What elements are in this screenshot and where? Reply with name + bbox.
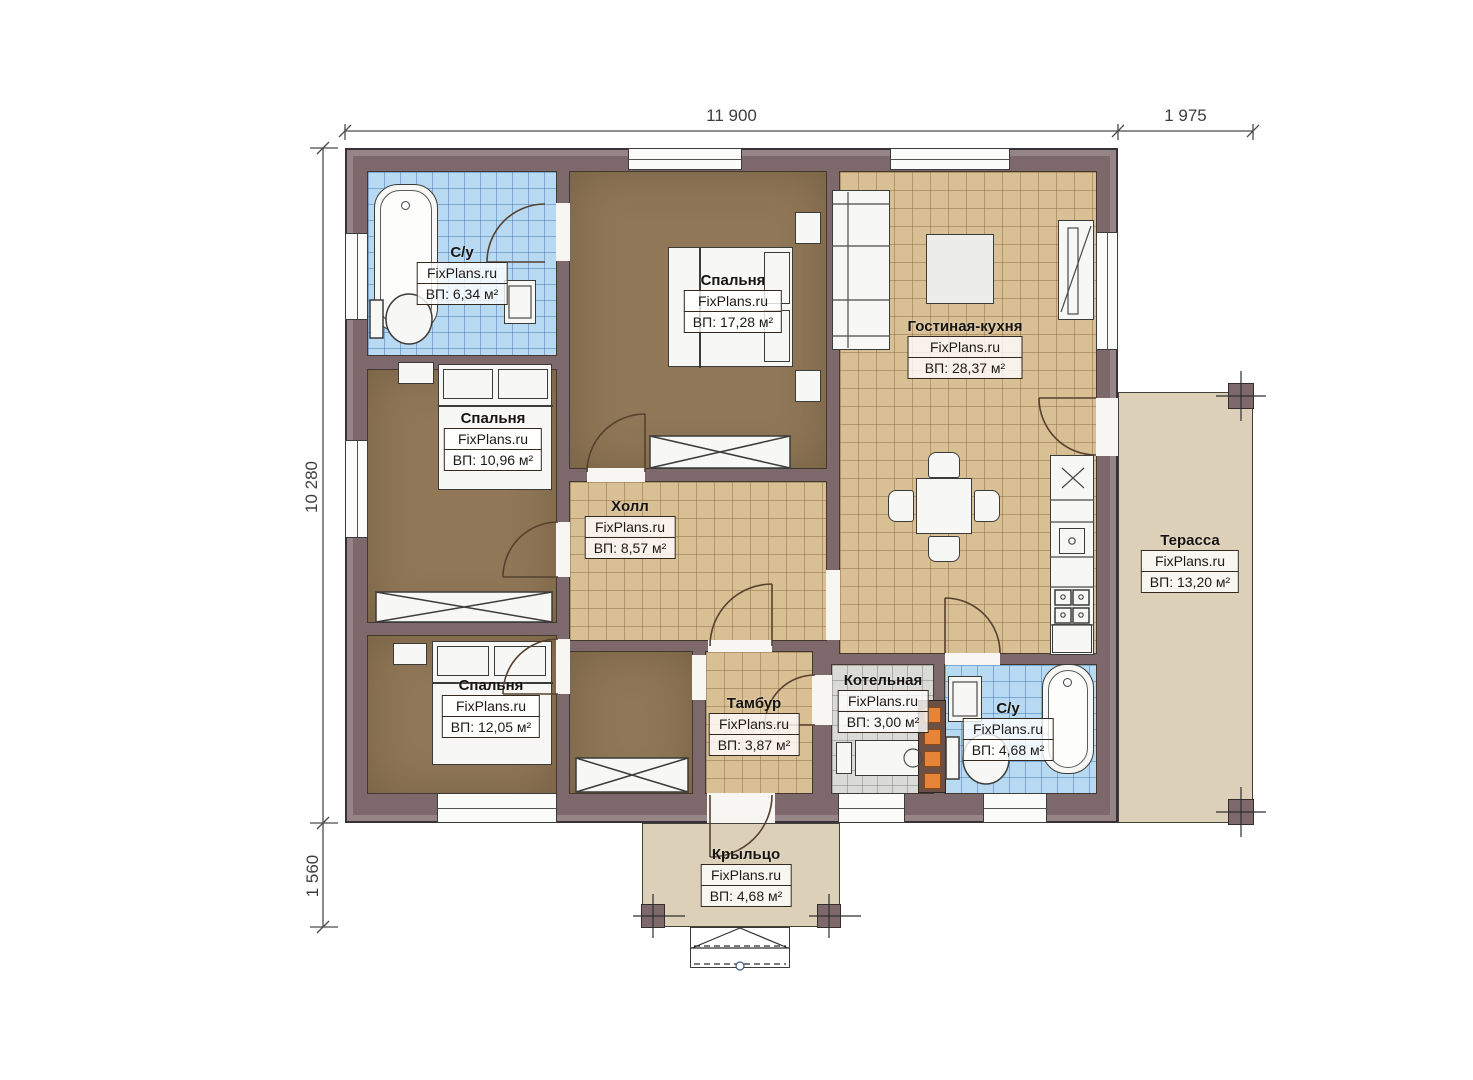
watermark: FixPlans.ru <box>838 690 929 712</box>
room-label-bedroom-2: Спальня FixPlans.ru ВП: 10,96 м² <box>444 410 542 471</box>
door-opening-terrace <box>1096 398 1118 456</box>
room-area: ВП: 12,05 м² <box>442 716 540 738</box>
window-boiler-bottom <box>838 793 905 823</box>
window-bedroom-1-top <box>628 148 742 170</box>
porch-post <box>817 904 841 928</box>
door-opening-entrance <box>707 793 775 823</box>
dimension-height-main: 10 280 <box>302 427 322 547</box>
window-living-right <box>1096 232 1118 350</box>
nightstand <box>398 362 434 384</box>
door-opening-boiler <box>812 675 832 725</box>
watermark: FixPlans.ru <box>963 718 1054 740</box>
chair <box>928 452 960 478</box>
dining-table <box>916 478 972 534</box>
room-name: Гостиная-кухня <box>908 318 1023 335</box>
coffee-table <box>926 234 994 304</box>
door-opening-bedroom-1 <box>587 468 645 482</box>
dimension-width-main: 11 900 <box>345 106 1118 126</box>
fridge <box>1052 624 1092 653</box>
terrace-post <box>1228 799 1254 825</box>
window-bathroom-1-left <box>345 233 368 320</box>
room-label-living-kitchen: Гостиная-кухня FixPlans.ru ВП: 28,37 м² <box>908 318 1023 379</box>
room-area: ВП: 28,37 м² <box>908 357 1023 379</box>
room-name: Спальня <box>684 272 782 289</box>
room-area: ВП: 4,68 м² <box>963 739 1054 761</box>
chair <box>974 490 1000 522</box>
sink <box>504 280 536 324</box>
terrace-deck <box>1118 392 1253 823</box>
floor-plan: 11 900 1 975 10 280 1 560 С/у FixPlans.r… <box>0 0 1473 1080</box>
watermark: FixPlans.ru <box>585 516 676 538</box>
window-living-top <box>890 148 1010 170</box>
window-bedroom-2-left <box>345 440 368 538</box>
entrance-steps <box>690 927 790 968</box>
room-name: Холл <box>585 498 676 515</box>
room-label-hall: Холл FixPlans.ru ВП: 8,57 м² <box>585 498 676 559</box>
room-name: С/у <box>417 244 508 261</box>
room-name: Терасса <box>1141 532 1239 549</box>
door-opening-closet <box>692 655 706 700</box>
room-area: ВП: 17,28 м² <box>684 311 782 333</box>
room-name: Тамбур <box>709 695 800 712</box>
dimension-width-terrace: 1 975 <box>1118 106 1253 126</box>
porch-post <box>641 904 665 928</box>
room-label-bathroom-1: С/у FixPlans.ru ВП: 6,34 м² <box>417 244 508 305</box>
passage-hall-living <box>826 570 840 640</box>
oven <box>1059 528 1085 554</box>
door-opening-bathroom-2 <box>945 653 1000 665</box>
room-label-bedroom-1: Спальня FixPlans.ru ВП: 17,28 м² <box>684 272 782 333</box>
room-label-terrace: Терасса FixPlans.ru ВП: 13,20 м² <box>1141 532 1239 593</box>
room-area: ВП: 10,96 м² <box>444 449 542 471</box>
door-opening-hall-vestibule <box>708 640 772 652</box>
room-name: С/у <box>963 700 1054 717</box>
watermark: FixPlans.ru <box>417 262 508 284</box>
room-name: Спальня <box>444 410 542 427</box>
room-name: Крыльцо <box>701 846 792 863</box>
floor-closet <box>570 652 692 793</box>
room-name: Спальня <box>442 677 540 694</box>
room-area: ВП: 13,20 м² <box>1141 571 1239 593</box>
window-bathroom-2-bottom <box>983 793 1047 823</box>
watermark: FixPlans.ru <box>701 864 792 886</box>
nightstand <box>795 370 821 402</box>
room-label-vestibule: Тамбур FixPlans.ru ВП: 3,87 м² <box>709 695 800 756</box>
door-opening-bedroom-3 <box>556 639 570 694</box>
watermark: FixPlans.ru <box>709 713 800 735</box>
nightstand <box>795 212 821 244</box>
watermark: FixPlans.ru <box>444 428 542 450</box>
window-bedroom-3-bottom <box>437 793 557 823</box>
boiler-unit <box>836 742 852 774</box>
door-opening-bathroom-1 <box>556 203 570 261</box>
room-label-porch: Крыльцо FixPlans.ru ВП: 4,68 м² <box>701 846 792 907</box>
room-area: ВП: 8,57 м² <box>585 537 676 559</box>
room-area: ВП: 3,87 м² <box>709 734 800 756</box>
room-area: ВП: 4,68 м² <box>701 885 792 907</box>
sofa <box>832 190 890 350</box>
room-label-bathroom-2: С/у FixPlans.ru ВП: 4,68 м² <box>963 700 1054 761</box>
chair <box>928 536 960 562</box>
room-label-bedroom-3: Спальня FixPlans.ru ВП: 12,05 м² <box>442 677 540 738</box>
dimension-height-porch: 1 560 <box>303 821 323 931</box>
watermark: FixPlans.ru <box>442 695 540 717</box>
terrace-post <box>1228 383 1254 409</box>
room-name: Котельная <box>838 672 929 689</box>
watermark: FixPlans.ru <box>1141 550 1239 572</box>
watermark: FixPlans.ru <box>684 290 782 312</box>
room-area: ВП: 3,00 м² <box>838 711 929 733</box>
watermark: FixPlans.ru <box>908 336 1023 358</box>
door-opening-bedroom-2 <box>556 522 570 577</box>
room-area: ВП: 6,34 м² <box>417 283 508 305</box>
nightstand <box>393 643 427 665</box>
room-label-boiler-room: Котельная FixPlans.ru ВП: 3,00 м² <box>838 672 929 733</box>
tv-stand <box>1058 220 1094 320</box>
chair <box>888 490 914 522</box>
